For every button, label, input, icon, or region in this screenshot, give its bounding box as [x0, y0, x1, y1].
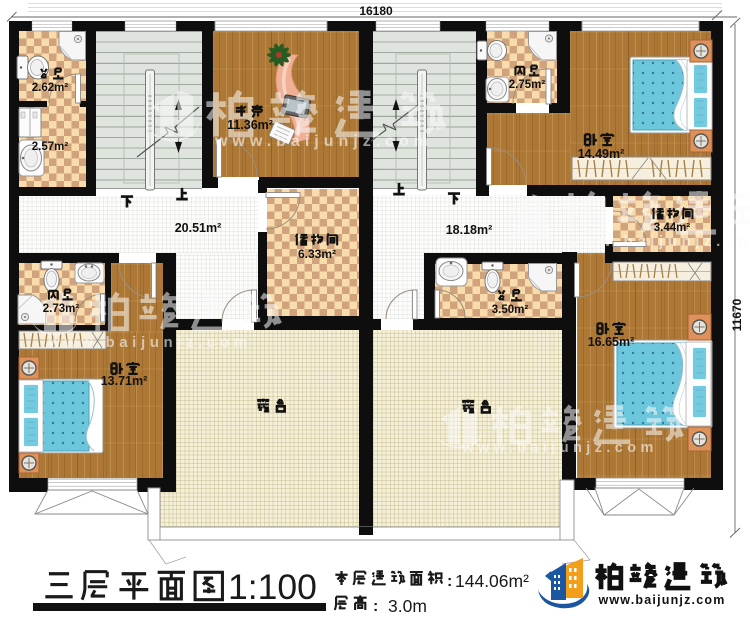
svg-text:11670: 11670: [730, 298, 744, 331]
svg-text:20.51m²: 20.51m²: [175, 221, 222, 235]
svg-text:16.65m²: 16.65m²: [588, 335, 635, 349]
svg-text:6.33m²: 6.33m²: [298, 247, 336, 261]
svg-text:3.0m: 3.0m: [388, 596, 427, 616]
svg-text:www.baijunjz.com: www.baijunjz.com: [47, 334, 251, 351]
svg-text:www.baijunjz.com: www.baijunjz.com: [214, 133, 433, 150]
svg-text:16180: 16180: [359, 4, 393, 18]
svg-text:3.50m²: 3.50m²: [492, 304, 529, 316]
svg-text:www.baijunjz.com: www.baijunjz.com: [461, 440, 658, 456]
svg-text:2.57m²: 2.57m²: [32, 141, 69, 153]
svg-text:1:100: 1:100: [228, 567, 317, 607]
svg-text:2.75m²: 2.75m²: [509, 79, 546, 91]
svg-text:11.36m²: 11.36m²: [227, 118, 273, 132]
svg-text:14.49m²: 14.49m²: [578, 147, 625, 161]
svg-text:2.62m²: 2.62m²: [32, 82, 69, 94]
svg-text:www.baijunjz.com: www.baijunjz.com: [597, 593, 725, 607]
svg-text:144.06m²: 144.06m²: [455, 571, 529, 591]
svg-text:3.44m²: 3.44m²: [654, 222, 691, 234]
svg-text:13.71m²: 13.71m²: [101, 374, 148, 388]
svg-text::: :: [373, 598, 378, 615]
svg-text:2.73m²: 2.73m²: [43, 303, 80, 315]
svg-text::: :: [447, 573, 452, 590]
svg-text:18.18m²: 18.18m²: [446, 223, 493, 237]
svg-text:www.baijunjz.com: www.baijunjz.com: [565, 233, 750, 250]
